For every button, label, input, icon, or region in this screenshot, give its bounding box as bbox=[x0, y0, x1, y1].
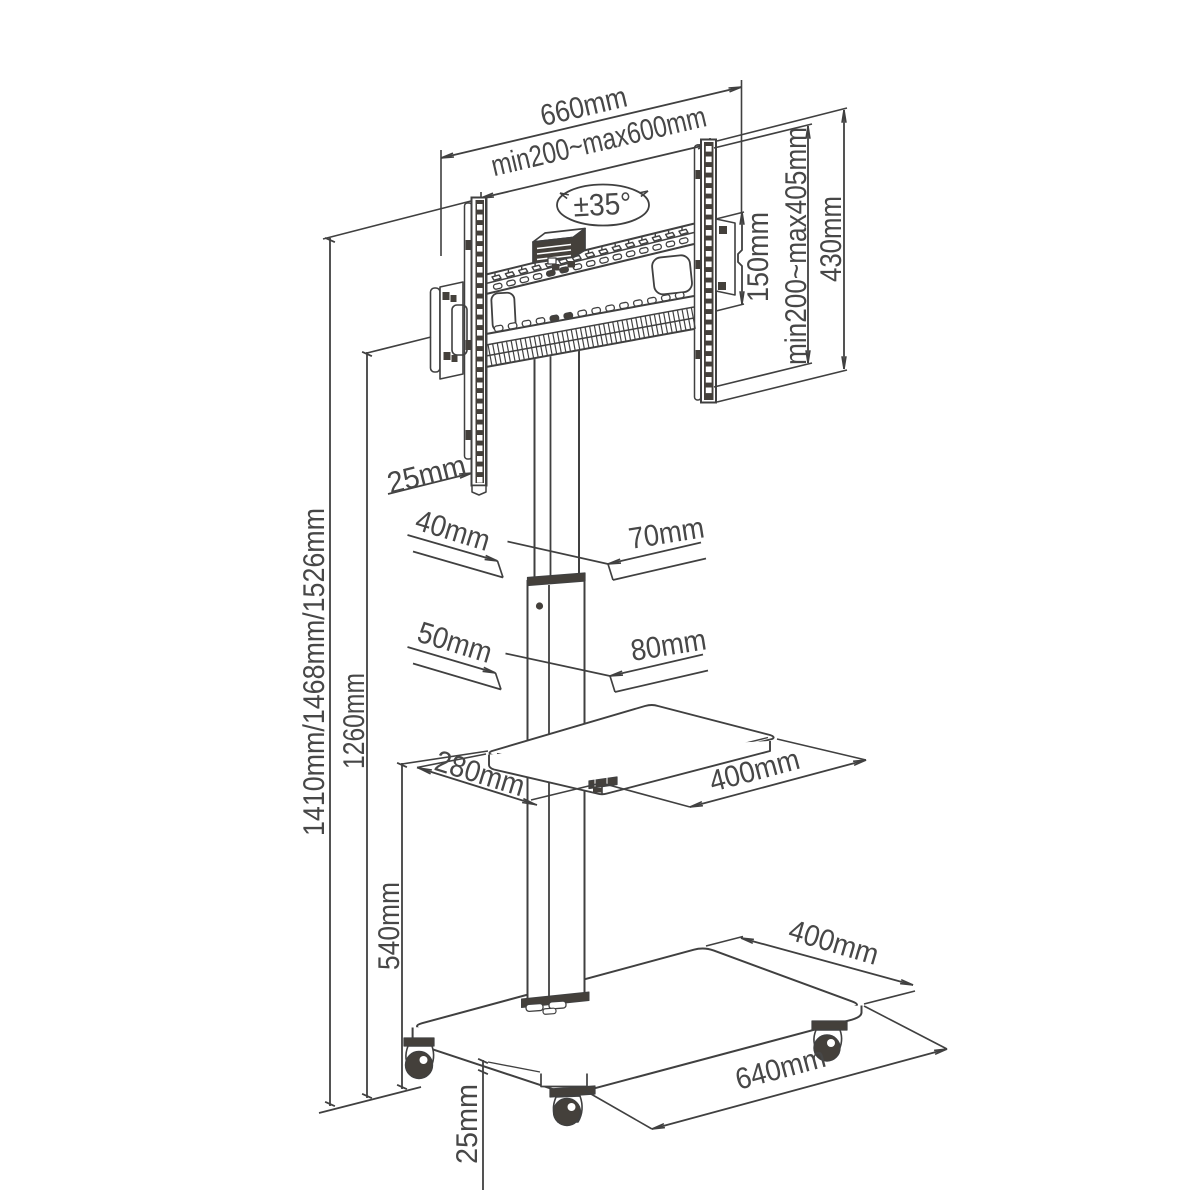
svg-text:25mm: 25mm bbox=[451, 1084, 484, 1164]
svg-text:540mm: 540mm bbox=[373, 882, 406, 970]
svg-text:±35°: ±35° bbox=[573, 186, 633, 224]
svg-text:1260mm: 1260mm bbox=[338, 673, 371, 769]
svg-text:150mm: 150mm bbox=[742, 212, 775, 302]
svg-text:min200~max405mm: min200~max405mm bbox=[780, 127, 813, 365]
svg-text:1410mm/1468mm/1526mm: 1410mm/1468mm/1526mm bbox=[298, 508, 331, 836]
svg-text:430mm: 430mm bbox=[815, 196, 848, 282]
